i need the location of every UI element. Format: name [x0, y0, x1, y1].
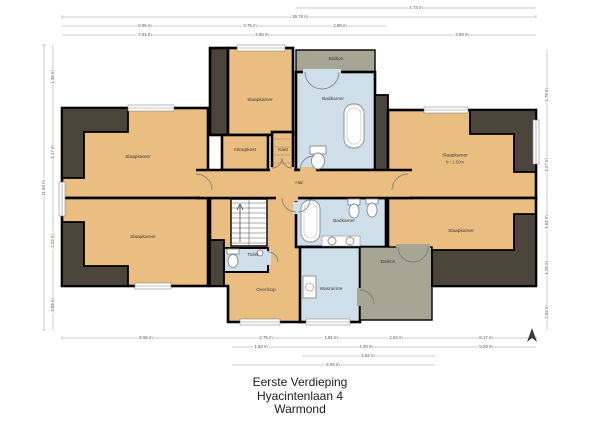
dim-label: 3.50 m	[454, 33, 469, 37]
dim-label: 8.17 m	[478, 336, 493, 340]
dim-label: 1.83 m	[253, 345, 268, 349]
room-label-slaapkamer-top-left: Slaapkamer	[125, 155, 151, 161]
toilet-icon	[227, 249, 239, 254]
room-label-text: Slaapkamer	[442, 153, 468, 158]
toilet-icon	[228, 255, 238, 268]
room-label-toilet: Toilet	[247, 253, 258, 259]
toilet-icon	[312, 153, 325, 169]
dim-label: 2.75 m	[258, 336, 273, 340]
balcony-bottom	[360, 247, 432, 320]
room-label-slaapkamer-bottom-left: Slaapkamer	[130, 235, 156, 241]
room-label-badkamer-bottom: Badkamer	[333, 219, 355, 225]
room-label-balkon-top: Balkon	[329, 57, 344, 63]
dim-label: 1.62 m	[545, 214, 549, 229]
dim-label: 2.88 m	[332, 24, 347, 28]
floorplan-page: Slaapkamer Slaapkamer Slaapkamer Inloopk…	[0, 0, 600, 424]
title-block: Eerste Verdieping Hyacintenlaan 4 Warmon…	[0, 376, 600, 417]
dim-label: 2.60 m	[254, 33, 269, 37]
dim-label: 2.62 m	[545, 304, 549, 319]
dim-label: 1.35 m	[51, 69, 55, 84]
bidet-icon	[367, 203, 377, 217]
room-label-slaapkamer-right-bottom: Slaapkamer	[448, 229, 474, 235]
dim-label: 2.84 m	[388, 336, 403, 340]
stairs-icon	[231, 199, 267, 246]
room-label-inloopkast: Inloopkast	[234, 148, 256, 154]
city-line: Warmond	[0, 403, 600, 417]
dim-label: 26.76 m	[291, 15, 309, 19]
sink-icon	[346, 237, 354, 245]
dim-label: 7.91 m	[137, 33, 152, 37]
dim-label: 4.25 m	[545, 260, 549, 275]
dim-label: 3.05 m	[51, 297, 55, 312]
dim-label: 6.94 m	[325, 363, 340, 367]
dim-label: 8.55 m	[137, 24, 152, 28]
room-label-kast: Kast	[278, 148, 288, 154]
dim-label: 2.78 m	[545, 87, 549, 102]
floorplan-drawing	[0, 0, 600, 424]
dim-label: 3.75 m	[242, 24, 257, 28]
north-arrow-icon	[527, 328, 537, 342]
room-label-hal: Hal	[295, 181, 302, 187]
dim-label: 4.20 m	[358, 345, 373, 349]
room-label-badkamer-top: Badkamer	[322, 97, 344, 103]
room-label-wasruimte: Wasruimte	[320, 287, 343, 293]
room-slaapkamer-top-middle	[228, 48, 293, 135]
toilet-icon	[349, 204, 359, 218]
room-height-note: h= 1.50m	[442, 159, 468, 165]
dim-label: 4.73 m	[408, 6, 423, 10]
dim-label: 4.17 m	[51, 144, 55, 159]
dim-label: 5.29 m	[478, 345, 493, 349]
sink-icon	[328, 237, 336, 245]
room-label-slaapkamer-top-middle: Slaapkamer	[247, 98, 273, 104]
dim-label: 2.22 m	[51, 233, 55, 248]
room-hal	[200, 170, 410, 198]
dim-label: 4.27 m	[545, 157, 549, 172]
room-label-balkon-bottom: Balkon	[381, 260, 396, 266]
address-line: Hyacintenlaan 4	[0, 390, 600, 404]
roof-slope-center	[210, 48, 228, 135]
room-label-overloop: Overloop	[256, 288, 275, 294]
roof-slope-stairwell	[210, 240, 224, 286]
floor-title: Eerste Verdieping	[0, 376, 600, 390]
room-label-slaapkamer-right-top: Slaapkamer h= 1.50m	[442, 153, 468, 164]
dim-label: 11.93 m	[42, 179, 46, 197]
dim-label: 8.55 m	[138, 336, 153, 340]
dim-label: 1.81 m	[323, 336, 338, 340]
dim-label: 4.82 m	[360, 354, 375, 358]
